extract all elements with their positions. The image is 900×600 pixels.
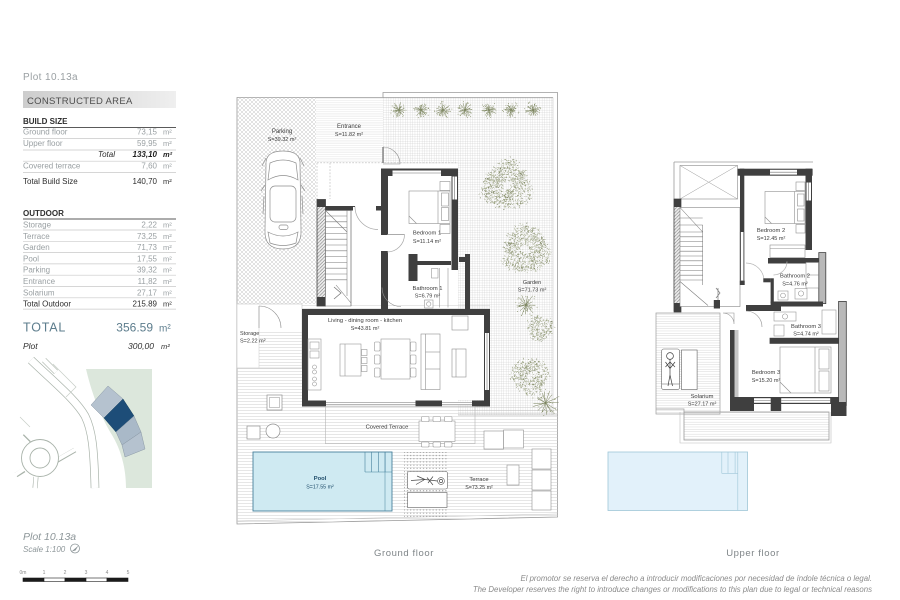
svg-text:m²: m²	[163, 177, 172, 186]
svg-text:m²: m²	[163, 150, 173, 159]
svg-text:m²: m²	[163, 221, 172, 230]
svg-text:Storage: Storage	[240, 331, 259, 337]
svg-text:17,55: 17,55	[137, 254, 158, 263]
svg-text:2,22: 2,22	[141, 221, 157, 230]
svg-text:S=2.22 m²: S=2.22 m²	[240, 339, 266, 345]
svg-text:m²: m²	[163, 139, 172, 148]
svg-text:5: 5	[127, 570, 130, 576]
svg-text:39,32: 39,32	[137, 266, 158, 275]
svg-text:m²: m²	[161, 342, 170, 351]
svg-text:S=39.32 m²: S=39.32 m²	[268, 137, 297, 143]
svg-text:m²: m²	[163, 266, 172, 275]
svg-text:Bathroom 1: Bathroom 1	[413, 286, 443, 292]
svg-text:m²: m²	[163, 161, 172, 170]
svg-text:73,15: 73,15	[137, 128, 158, 137]
svg-text:11,82: 11,82	[138, 277, 158, 286]
svg-text:Covered terrace: Covered terrace	[23, 161, 81, 170]
svg-text:m²: m²	[163, 243, 172, 252]
svg-text:S=43.81 m²: S=43.81 m²	[351, 326, 380, 332]
svg-text:1: 1	[43, 570, 46, 576]
svg-text:S=4.74 m²: S=4.74 m²	[793, 332, 819, 338]
svg-text:S=73.25 m²: S=73.25 m²	[465, 485, 493, 491]
svg-text:S=12.45 m²: S=12.45 m²	[757, 236, 786, 242]
svg-text:Total Outdoor: Total Outdoor	[23, 300, 71, 309]
svg-text:S=17.55 m²: S=17.55 m²	[306, 485, 334, 491]
svg-text:m²: m²	[163, 288, 172, 297]
svg-text:CONSTRUCTED AREA: CONSTRUCTED AREA	[27, 96, 133, 107]
svg-text:S=27.17 m²: S=27.17 m²	[688, 402, 717, 408]
svg-text:Plot 10.13a: Plot 10.13a	[23, 72, 78, 83]
svg-text:Terrace: Terrace	[469, 477, 488, 483]
svg-text:Plot: Plot	[23, 341, 38, 351]
svg-text:Total: Total	[98, 150, 115, 159]
svg-text:Living - dining room - kitche: Living - dining room - kitchen	[328, 318, 402, 324]
svg-text:El promotor se reserva el dere: El promotor se reserva el derecho a intr…	[521, 574, 873, 583]
svg-text:140,70: 140,70	[133, 177, 158, 186]
svg-text:2: 2	[64, 570, 67, 576]
svg-text:Entrance: Entrance	[337, 124, 362, 130]
svg-text:Terrace: Terrace	[23, 232, 50, 241]
svg-text:Ground floor: Ground floor	[374, 548, 434, 559]
svg-text:m²: m²	[163, 128, 172, 137]
svg-text:59,95: 59,95	[137, 139, 158, 148]
svg-text:m²: m²	[163, 277, 172, 286]
svg-text:The Developer reserves the rig: The Developer reserves the right to intr…	[473, 585, 872, 594]
svg-text:Parking: Parking	[272, 129, 292, 135]
svg-text:4: 4	[106, 570, 109, 576]
svg-text:S=15.20 m²: S=15.20 m²	[752, 378, 781, 384]
svg-text:OUTDOOR: OUTDOOR	[23, 209, 64, 218]
svg-text:m²: m²	[163, 232, 172, 241]
svg-text:Parking: Parking	[23, 266, 50, 275]
svg-text:Bedroom 3: Bedroom 3	[752, 370, 780, 376]
svg-text:Solarium: Solarium	[23, 288, 55, 297]
svg-text:27,17: 27,17	[137, 288, 158, 297]
svg-text:Upper floor: Upper floor	[23, 139, 63, 148]
svg-text:Plot 10.13a: Plot 10.13a	[23, 531, 76, 543]
svg-text:BUILD SIZE: BUILD SIZE	[23, 117, 68, 126]
svg-text:Scale 1:100: Scale 1:100	[23, 545, 66, 554]
svg-text:133,10: 133,10	[133, 150, 158, 159]
svg-text:Total Build Size: Total Build Size	[23, 177, 78, 186]
svg-text:Pool: Pool	[23, 254, 39, 263]
svg-text:Entrance: Entrance	[23, 277, 56, 286]
svg-text:m²: m²	[163, 300, 172, 309]
svg-text:356.59: 356.59	[116, 321, 153, 335]
svg-text:S=71.73 m²: S=71.73 m²	[518, 288, 547, 294]
svg-text:73,25: 73,25	[137, 232, 158, 241]
svg-text:7,60: 7,60	[141, 161, 157, 170]
svg-text:Ground floor: Ground floor	[23, 128, 68, 137]
svg-text:Garden: Garden	[523, 280, 541, 286]
svg-text:300,00: 300,00	[128, 341, 154, 351]
svg-text:Covered Terrace: Covered Terrace	[366, 425, 409, 431]
svg-text:215.89: 215.89	[133, 300, 158, 309]
svg-text:Bathroom 3: Bathroom 3	[791, 324, 821, 330]
svg-text:Upper floor: Upper floor	[726, 548, 780, 559]
svg-text:Bedroom 1: Bedroom 1	[413, 231, 441, 237]
svg-text:Storage: Storage	[23, 221, 52, 230]
svg-text:Pool: Pool	[314, 476, 327, 482]
svg-text:TOTAL: TOTAL	[23, 321, 66, 335]
svg-text:3: 3	[85, 570, 88, 576]
svg-text:0m: 0m	[20, 570, 27, 576]
svg-text:S=11.14 m²: S=11.14 m²	[413, 239, 441, 245]
svg-text:m²: m²	[159, 324, 171, 335]
svg-text:Bathroom 2: Bathroom 2	[780, 274, 810, 280]
svg-text:S=6.79 m²: S=6.79 m²	[415, 294, 441, 300]
svg-text:Bedroom 2: Bedroom 2	[757, 228, 785, 234]
svg-text:Garden: Garden	[23, 243, 50, 252]
svg-text:S=11.82 m²: S=11.82 m²	[335, 132, 363, 138]
svg-text:m²: m²	[163, 254, 172, 263]
svg-text:71,73: 71,73	[137, 243, 158, 252]
svg-text:Solarium: Solarium	[691, 394, 714, 400]
svg-text:S=4.76 m²: S=4.76 m²	[782, 282, 808, 288]
